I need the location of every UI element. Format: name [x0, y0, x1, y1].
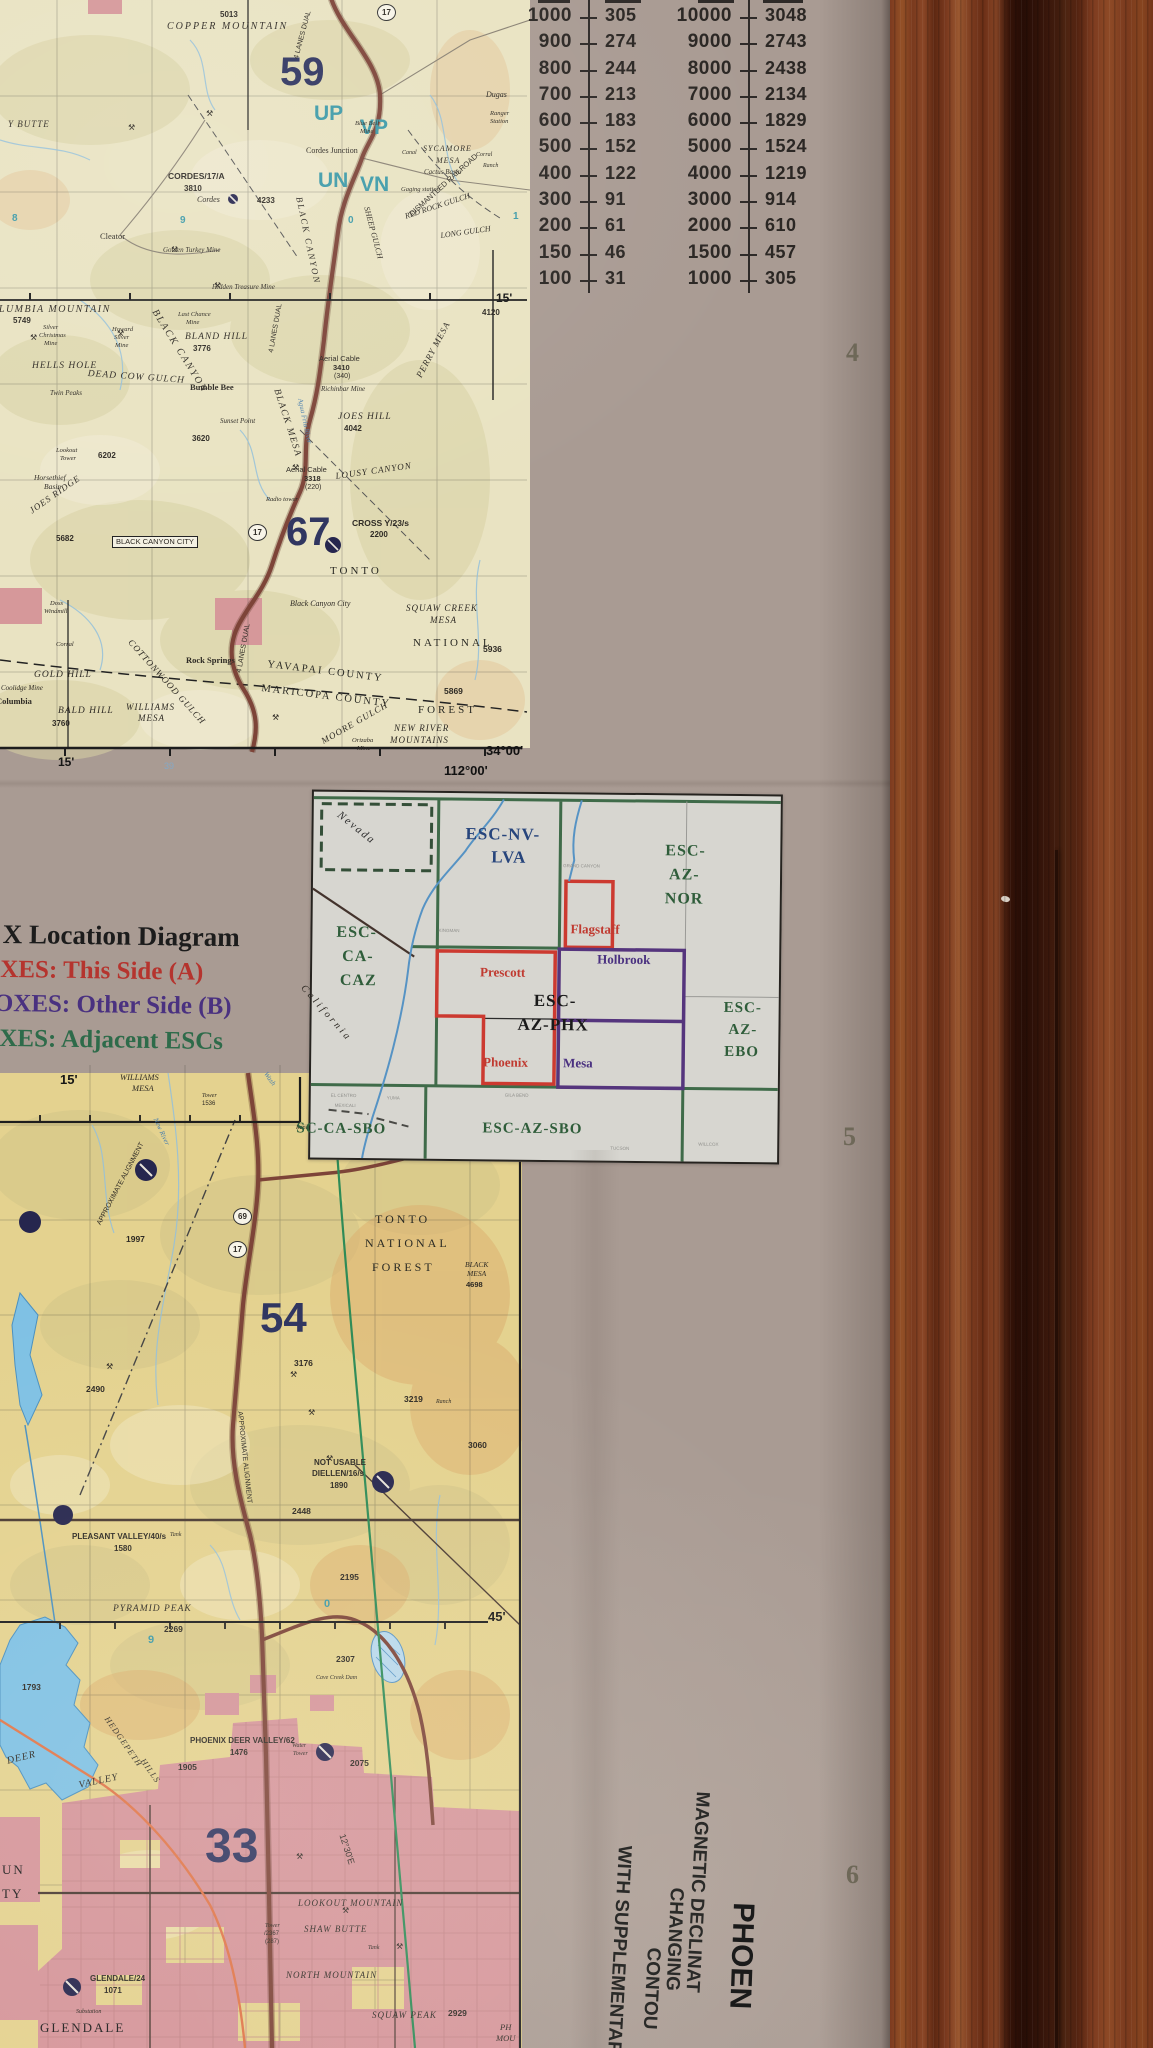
map-label: 1071 [104, 1987, 122, 1995]
scale-tick [740, 43, 757, 45]
map-label: Silver [43, 325, 58, 332]
scale-tick [580, 254, 597, 256]
feet-value: 700 [492, 84, 572, 106]
map-label: 4 LANES DUAL [268, 303, 283, 353]
map-label: PHOENIX DEER VALLEY/62 [190, 1737, 295, 1745]
wood-table-surface [883, 0, 1153, 2048]
fold-panel-number-4: 4 [846, 340, 859, 366]
map-label: CROSS Y/23/s [352, 519, 409, 528]
declination-value: 12°30'E [337, 1833, 355, 1866]
scale-tick [740, 96, 757, 98]
city-flagstaff: Flagstaff [570, 922, 619, 936]
conversion-row: 20061 [492, 211, 642, 237]
meters-value: 122 [605, 163, 637, 184]
region-esc-az-nor: AZ- [669, 867, 700, 883]
wood-dark-grain-band [991, 0, 1091, 2048]
scale-tick [580, 148, 597, 150]
note-supplementary: WITH SUPPLEMENTARY [603, 1845, 634, 2048]
map-label: 3176 [294, 1359, 313, 1368]
map-label: 2195 [340, 1573, 359, 1582]
map-label: YAVAPAI COUNTY [267, 660, 384, 685]
map-label: GOLD HILL [34, 671, 92, 681]
map-label: MESA [430, 616, 457, 625]
paper-fold-crease [0, 779, 890, 788]
map-label: Orizaba [352, 738, 373, 745]
map-label: 15' [60, 1073, 78, 1086]
sheet-title-phoenix: PHOEN [724, 1902, 758, 2010]
map-label: (287) [265, 1939, 279, 1945]
map-label: 1580 [114, 1545, 132, 1553]
scale-tick [740, 148, 757, 150]
map-label: 3810 [184, 185, 202, 193]
topo-map-panel-north: COPPER MOUNTAIN501359UPVPUNVN174 LANES D… [0, 0, 530, 780]
map-label: Substation [76, 2009, 101, 2015]
city-mesa: Mesa [563, 1056, 593, 1069]
map-label: Cordes [197, 196, 220, 204]
feet-value: 200 [492, 215, 572, 237]
map-label: SQUAW PEAK [372, 2011, 437, 2020]
scale-tick [580, 70, 597, 72]
meters-value: 305 [605, 5, 637, 26]
map-label: 0 [324, 1599, 330, 1610]
map-label: JOES HILL [338, 413, 392, 423]
map-label: ⚒ [296, 1853, 303, 1861]
scale-tick [580, 280, 597, 282]
map-label: ⚒ [326, 1455, 333, 1463]
map-label: BLAND HILL [185, 333, 248, 343]
map-label: 2269 [164, 1625, 183, 1634]
map-label: 2307 [336, 1655, 355, 1664]
map-label: TONTO [330, 566, 382, 577]
region-esc-ca-caz: CA- [342, 949, 374, 965]
map-label: ⚒ [308, 1409, 315, 1417]
map-label: DEER [6, 1750, 37, 1767]
map-label: Horsethief [34, 474, 66, 482]
map-label: 6202 [98, 452, 116, 460]
conversion-row: 10031 [492, 264, 642, 290]
map-label: WILLCOX [698, 1143, 718, 1148]
map-label: 39 [164, 762, 174, 771]
map-label: 3219 [404, 1395, 423, 1404]
map-label: HEDGEPETH [103, 1715, 144, 1768]
map-label: 9 [180, 216, 186, 226]
map-label: ⚒ [396, 1943, 403, 1951]
map-label: Tower [60, 456, 76, 463]
map-label: 5936 [483, 645, 502, 654]
region-esc-az-ebo: EBO [724, 1045, 759, 1060]
map-label: 4698 [466, 1281, 483, 1289]
note-magnetic-declination: MAGNETIC DECLINAT [682, 1791, 712, 1993]
map-label: YUMA [387, 1096, 400, 1101]
map-label: 4120 [482, 309, 500, 317]
map-label: ⚒ [342, 1907, 349, 1915]
map-label: Corral [56, 642, 74, 649]
map-label: 2490 [86, 1385, 105, 1394]
meters-value: 610 [765, 215, 797, 236]
map-label: ⚒ [206, 110, 213, 118]
map-label: APPROXIMATE ALIGNMENT [236, 1411, 253, 1504]
map-label: UN [2, 1863, 25, 1876]
scale-tick [740, 122, 757, 124]
conversion-row: 60001829 [652, 106, 802, 132]
region-esc-nv-lva: LVA [491, 848, 526, 865]
city-prescott: Prescott [480, 965, 525, 978]
map-label: NOT USABLE [314, 1459, 366, 1467]
map-label: NORTH MOUNTAIN [286, 1971, 377, 1980]
map-label: Doss [50, 601, 63, 608]
map-label: Cave Creek Dam [316, 1675, 357, 1681]
map-label: 3318 [304, 475, 321, 483]
map-label: MOUNTAINS [390, 736, 449, 745]
feet-value: 6000 [652, 110, 732, 132]
region-esc-ca-caz: ESC- [336, 925, 377, 941]
map-label: MOU [496, 2034, 515, 2043]
feet-value: 5000 [652, 136, 732, 158]
map-label: 1793 [22, 1683, 41, 1692]
region-esc-az-phx: AZ-PHX [517, 1016, 588, 1034]
map-label: New River [152, 1117, 171, 1147]
map-label: PLEASANT VALLEY/40/s [72, 1533, 166, 1541]
map-label: Tank [368, 1945, 379, 1951]
region-esc-az-phx: ESC- [534, 992, 577, 1009]
map-label: 3410 [333, 364, 350, 372]
city-phoenix: Phoenix [483, 1055, 528, 1068]
map-label: Richinbar Mine [321, 386, 365, 393]
map-label: BLACK [465, 1261, 488, 1269]
map-label: 2075 [350, 1759, 369, 1768]
map-label: DIELLEN/16/s [312, 1470, 364, 1478]
meters-value: 46 [605, 242, 626, 263]
map-label: NEW RIVER [394, 724, 449, 733]
region-esc-az-ebo: AZ- [728, 1023, 757, 1038]
map-label: UP [314, 103, 343, 124]
fold-panel-number-6: 6 [846, 1862, 859, 1888]
meters-value: 2438 [765, 58, 807, 79]
map-label: 2448 [292, 1507, 311, 1516]
map-label: Last Chance [178, 312, 211, 319]
meters-value: 1829 [765, 110, 807, 131]
map-label: Water [292, 1743, 306, 1749]
feet-value: 300 [492, 189, 572, 211]
conversion-row: 900274 [492, 27, 642, 53]
wood-grain-crack [1055, 850, 1058, 2048]
map-label: 5749 [13, 317, 31, 325]
map-label: Twin Peaks [50, 390, 82, 397]
map-label: Coolidge Mine [1, 685, 43, 692]
map-label: 2200 [370, 531, 388, 539]
map-label: ⚒ [171, 246, 178, 254]
map-label: 1997 [126, 1235, 145, 1244]
meters-value: 3048 [765, 5, 807, 26]
wood-paint-speck [1000, 895, 1010, 903]
meters-value: 244 [605, 58, 637, 79]
map-label: GILA BEND [505, 1094, 529, 1099]
map-label: ⚒ [30, 334, 37, 342]
conversion-row: 800244 [492, 54, 642, 80]
conversion-row: 90002743 [652, 27, 802, 53]
state-california: California [298, 983, 353, 1043]
map-label: Mine [44, 341, 57, 348]
meters-value: 91 [605, 189, 626, 210]
scale-tick [740, 17, 757, 19]
feet-value: 150 [492, 242, 572, 264]
scale-tick [580, 17, 597, 19]
map-label: GRAND CANYON [563, 864, 600, 869]
map-label: ⚒ [214, 282, 221, 290]
map-label: Corral [476, 152, 492, 158]
meters-value: 305 [765, 268, 797, 289]
map-label: MESA [132, 1084, 154, 1093]
map-label: BALD HILL [58, 707, 114, 717]
map-label: Mine [360, 129, 373, 136]
feet-value: 8000 [652, 58, 732, 80]
map-label: 1890 [330, 1482, 348, 1490]
map-label: ⚒ [128, 124, 135, 132]
map-label: ⚒ [290, 1371, 297, 1379]
conversion-row: 1500457 [652, 238, 802, 264]
legend-green-boxes: XES: Adjacent ESCs [0, 1026, 223, 1054]
conversion-row: 700213 [492, 80, 642, 106]
map-label: HILLS [139, 1757, 162, 1785]
map-label: Tower [202, 1093, 217, 1099]
scale-tick [580, 96, 597, 98]
city-holbrook: Holbrook [597, 953, 650, 967]
map-label: /2367 [264, 1931, 279, 1937]
map-label: COLUMBIA MOUNTAIN [0, 305, 111, 315]
route-shield-17: 17 [377, 4, 396, 21]
map-label: VALLEY [78, 1773, 119, 1791]
map-label: BLACK CANYON [294, 196, 321, 285]
conversion-row: 80002438 [652, 54, 802, 80]
meters-value: 274 [605, 31, 637, 52]
map-label: WILLIAMS [120, 1073, 159, 1082]
note-contour: CONTOU [640, 1947, 663, 2030]
meters-value: 1524 [765, 136, 807, 157]
feet-value: 3000 [652, 189, 732, 211]
map-label: SHAW BUTTE [304, 1925, 367, 1934]
map-label: LOUSY CANYON [335, 461, 412, 481]
grid-zone-67: 67 [286, 512, 331, 552]
scale-tick [740, 227, 757, 229]
map-label: DEAD COW GULCH [87, 370, 185, 386]
scale-tick [580, 175, 597, 177]
scale-tick [580, 122, 597, 124]
map-label: ⚒ [292, 464, 299, 472]
map-label: 0 [348, 216, 354, 226]
legend-purple-boxes: OXES: Other Side (B) [0, 991, 232, 1019]
map-label: Cleator [100, 232, 125, 241]
scale-tick [580, 227, 597, 229]
map-label: PERRY MESA [415, 320, 452, 379]
map-label: ⚒ [117, 330, 124, 338]
feet-value: 900 [492, 31, 572, 53]
meters-value: 2743 [765, 31, 807, 52]
region-esc-az-nor: ESC- [665, 843, 706, 859]
map-label: Rock Springs [186, 656, 235, 665]
map-label: Wash [262, 1071, 276, 1087]
map-label: NATIONAL [413, 638, 493, 649]
map-label: Agua Fria River [296, 398, 312, 444]
map-label: UN [318, 170, 348, 191]
map-label: Aerial Cable [319, 355, 360, 363]
map-label: Mine [357, 746, 370, 753]
meters-value: 457 [765, 242, 797, 263]
grid-zone-59: 59 [280, 52, 325, 92]
map-label: Ranch [436, 1399, 451, 1405]
map-label: NATIONAL [365, 1237, 450, 1249]
scale-tick [740, 201, 757, 203]
map-label: CORDES/17/A [168, 172, 225, 181]
map-label: Columbia [0, 697, 32, 706]
map-label: SHEEP GULCH [362, 206, 384, 260]
scale-tick [740, 280, 757, 282]
route-shield-17: 17 [248, 524, 267, 541]
map-label: Christmas [39, 333, 66, 340]
map-label: TONTO [375, 1213, 430, 1225]
map-label: WILLIAMS [126, 703, 175, 712]
map-label: PH [500, 2023, 511, 2032]
map-label: TY [2, 1887, 23, 1900]
diagram-legend: X Location DiagramXES: This Side (A)OXES… [0, 903, 301, 1082]
map-label: EL CENTRO [331, 1094, 357, 1099]
map-label: Tower [265, 1923, 280, 1929]
map-label: Tank [170, 1532, 181, 1538]
map-label: GLENDALE/24 [90, 1975, 145, 1983]
map-label: 15' [58, 756, 74, 768]
map-label: (220) [305, 484, 321, 491]
map-label: Y BUTTE [8, 120, 50, 129]
feet-value: 10000 [652, 5, 732, 27]
paper-fold-crease [570, 1150, 620, 2048]
map-label: 4 LANES DUAL [236, 623, 251, 673]
feet-value: 100 [492, 268, 572, 290]
map-label: Mine [115, 343, 128, 350]
conversion-row: 1000305 [652, 264, 802, 290]
map-label: KINGMAN [438, 929, 459, 934]
legend-title: X Location Diagram [3, 921, 240, 951]
feet-value: 9000 [652, 31, 732, 53]
feet-value: 4000 [652, 163, 732, 185]
map-label: COPPER MOUNTAIN [167, 22, 288, 32]
map-label: MESA [467, 1270, 486, 1278]
region-esc-nv-lva: ESC-NV- [465, 825, 540, 843]
scale-tick [740, 175, 757, 177]
meters-value: 183 [605, 110, 637, 131]
conversion-column: 1000030489000274380002438700021346000182… [652, 1, 802, 297]
feet-value: 1000 [652, 268, 732, 290]
feet-value: 800 [492, 58, 572, 80]
map-label: SQUAW CREEK [406, 604, 478, 613]
note-changing: CHANGING [663, 1887, 686, 1991]
map-label: Radio tower [266, 497, 298, 504]
map-label: Bumble Bee [190, 383, 234, 392]
map-label: 1536 [202, 1101, 215, 1107]
meters-value: 152 [605, 136, 637, 157]
conversion-row: 2000610 [652, 211, 802, 237]
map-label: 3620 [192, 435, 210, 443]
map-label: FOREST [372, 1261, 435, 1273]
latitude-label: 34°00' [486, 744, 523, 757]
map-label: 3776 [193, 345, 211, 353]
scale-tick [580, 43, 597, 45]
map-label: TUCSON [610, 1147, 629, 1152]
scale-tick [580, 201, 597, 203]
fold-panel-number-5: 5 [843, 1124, 856, 1150]
feet-value: 7000 [652, 84, 732, 106]
map-label: 5869 [444, 687, 463, 696]
region-esc-az-sbo: ESC-AZ-SBO [482, 1121, 582, 1137]
feet-value: 500 [492, 136, 572, 158]
map-label: MEXICALI [335, 1104, 356, 1109]
meters-value: 2134 [765, 84, 807, 105]
conversion-row: 100003048 [652, 1, 802, 27]
meters-value: 213 [605, 84, 637, 105]
city-glendale: GLENDALE [40, 2021, 125, 2034]
conversion-row: 400122 [492, 159, 642, 185]
feet-value: 400 [492, 163, 572, 185]
map-label: VN [360, 174, 389, 195]
scale-tick [740, 70, 757, 72]
map-label: Sunset Point [220, 418, 255, 425]
map-label: 3760 [52, 720, 70, 728]
map-label: Tower [293, 1751, 308, 1757]
map-label: 1476 [230, 1749, 248, 1757]
region-esc-az-nor: NOR [665, 891, 704, 907]
feet-value: 2000 [652, 215, 732, 237]
map-label: 3060 [468, 1441, 487, 1450]
map-label: 45' [488, 1610, 506, 1623]
map-label: Cordes Junction [306, 147, 358, 155]
grid-zone-54: 54 [260, 1297, 307, 1339]
map-label: LONG GULCH [440, 225, 491, 240]
esc-location-diagram: NevadaESC-NV-LVAESC-AZ-NORFlagstaffHolbr… [308, 790, 783, 1165]
state-nevada: Nevada [335, 810, 378, 847]
meters-value: 61 [605, 215, 626, 236]
route-shield-17: 17 [228, 1241, 247, 1258]
map-label: MESA [436, 157, 460, 165]
map-label: Lookout [56, 448, 77, 455]
map-label: FOREST [418, 705, 477, 716]
map-label: 5682 [56, 535, 74, 543]
map-label: PYRAMID PEAK [113, 1605, 192, 1615]
conversion-row: 600183 [492, 106, 642, 132]
folded-map-sheet: COPPER MOUNTAIN501359UPVPUNVN174 LANES D… [0, 0, 890, 2048]
conversion-row: 500152 [492, 132, 642, 158]
topo-map-panel-south: 15'WILLIAMSMESATower1536RanchNew RiverWa… [0, 1065, 522, 2048]
map-label: 4233 [257, 197, 275, 205]
conversion-column: 1000305900274800244700213600183500152400… [492, 1, 642, 297]
map-label: 4042 [344, 425, 362, 433]
feet-value: 1500 [652, 242, 732, 264]
conversion-row: 50001524 [652, 132, 802, 158]
meters-value: 1219 [765, 163, 807, 184]
map-label: Hidden Treasure Mine [212, 284, 275, 291]
feet-value: 600 [492, 110, 572, 132]
map-label: APPROXIMATE ALIGNMENT [96, 1141, 146, 1226]
conversion-row: 30091 [492, 185, 642, 211]
meters-value: 914 [765, 189, 797, 210]
feet-value: 1000 [492, 5, 572, 27]
legend-red-boxes: XES: This Side (A) [0, 957, 203, 985]
map-label: Black Canyon City [290, 600, 350, 608]
map-label: 8 [12, 214, 18, 224]
region-esc-az-ebo: ESC- [724, 1001, 762, 1016]
map-label: 1905 [178, 1763, 197, 1772]
meters-value: 31 [605, 268, 626, 289]
conversion-row: 70002134 [652, 80, 802, 106]
boxed-label-black-canyon-city: BLACK CANYON CITY [112, 536, 198, 548]
map-label: 9 [148, 1635, 154, 1646]
